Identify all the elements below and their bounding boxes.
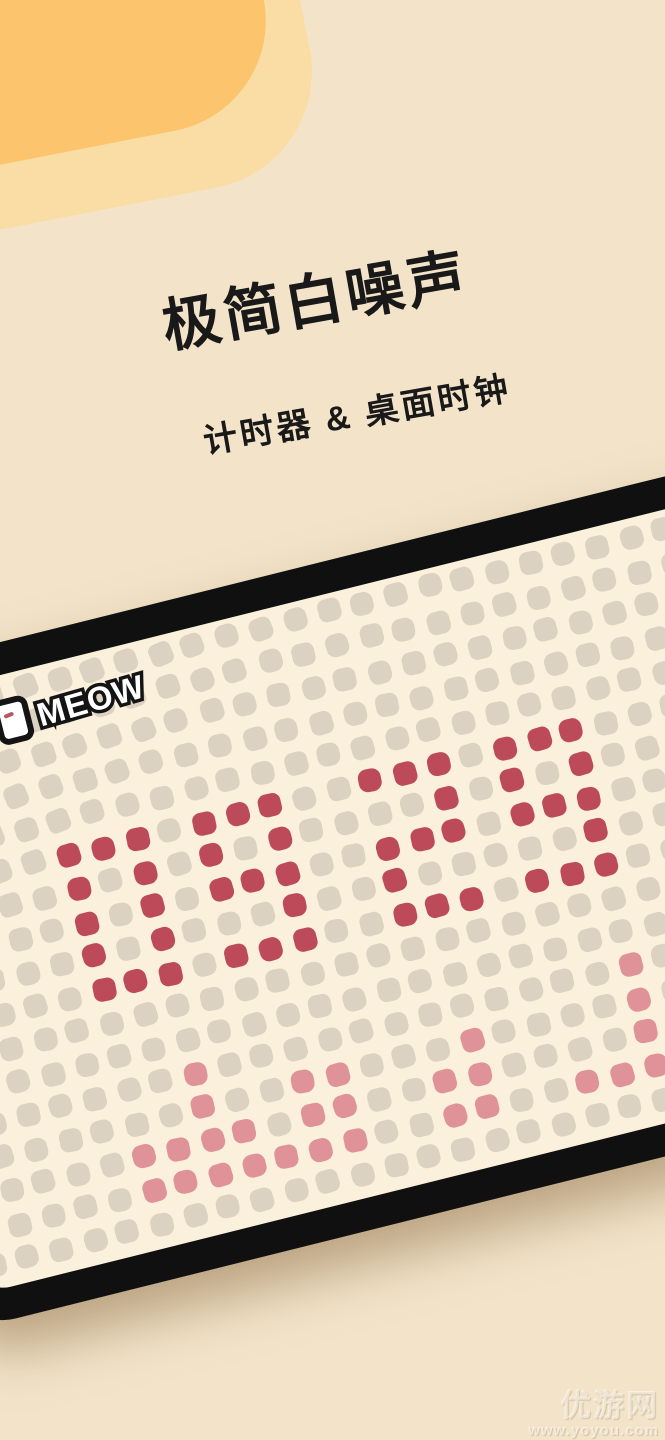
matrix-dot (498, 766, 526, 794)
matrix-dot (232, 835, 259, 862)
matrix-dot (187, 664, 217, 694)
matrix-dot (484, 700, 511, 727)
matrix-dot (424, 608, 452, 636)
matrix-dot (207, 875, 235, 903)
matrix-dot (60, 731, 90, 761)
matrix-dot (617, 524, 645, 552)
matrix-dot (381, 580, 409, 608)
matrix-dot (442, 675, 469, 702)
matrix-dot (616, 809, 645, 838)
matrix-dot (96, 866, 124, 894)
matrix-dot (491, 734, 519, 762)
matrix-dot (256, 934, 285, 963)
matrix-dot (615, 1093, 642, 1120)
matrix-dot (431, 1067, 459, 1095)
matrix-dot (307, 1136, 335, 1164)
matrix-dot (323, 630, 352, 659)
matrix-dot (407, 1111, 435, 1139)
matrix-dot (290, 784, 319, 813)
matrix-dot (358, 1051, 385, 1078)
matrix-dot (567, 609, 594, 636)
matrix-dot (459, 599, 486, 626)
matrix-dot (71, 1192, 99, 1220)
watermark: 优游网 www.yoyou.com (528, 1390, 659, 1438)
matrix-dot (375, 976, 402, 1003)
matrix-dot (148, 1211, 175, 1238)
matrix-dot (140, 1176, 168, 1204)
matrix-dot (115, 935, 143, 963)
matrix-dot (542, 935, 569, 962)
matrix-dot (241, 724, 269, 752)
matrix-dot (400, 649, 428, 677)
matrix-dot (406, 966, 434, 994)
matrix-dot (483, 558, 511, 586)
matrix-dot (340, 985, 368, 1013)
matrix-dot (508, 659, 536, 687)
matrix-dot (123, 1111, 150, 1138)
matrix-dot (339, 842, 366, 869)
matrix-dot (349, 734, 377, 762)
matrix-dot (273, 859, 302, 888)
matrix-dot (609, 634, 636, 661)
matrix-dot (153, 671, 182, 700)
matrix-dot (281, 1035, 309, 1063)
matrix-dot (624, 842, 651, 869)
matrix-dot (481, 841, 509, 869)
matrix-dot (649, 515, 665, 543)
matrix-dot (0, 1176, 25, 1203)
matrix-dot (466, 634, 494, 662)
matrix-dot (47, 1236, 75, 1264)
matrix-dot (566, 1035, 595, 1064)
matrix-dot (130, 1142, 158, 1170)
matrix-dot (0, 746, 23, 776)
cat-logo-icon (0, 694, 36, 747)
matrix-dot (626, 699, 654, 727)
matrix-dot (357, 910, 385, 938)
matrix-dot (222, 942, 250, 970)
matrix-dot (333, 951, 361, 979)
matrix-dot (425, 750, 452, 777)
matrix-dot (567, 749, 595, 777)
matrix-dot (372, 1117, 400, 1145)
matrix-dot (205, 1017, 233, 1045)
matrix-dot (349, 1161, 377, 1189)
matrix-dot (508, 1086, 535, 1113)
matrix-dot (274, 1001, 302, 1029)
matrix-dot (180, 916, 208, 944)
matrix-dot (7, 925, 35, 953)
dot-matrix-clock (0, 392, 665, 1294)
matrix-dot (414, 715, 443, 744)
matrix-dot (173, 1025, 201, 1053)
matrix-dot (592, 850, 620, 878)
promo-page: 极简白噪声 计时器 & 桌面时钟 MEOW 优游网 www.yoyou.com (0, 0, 665, 1440)
matrix-dot (365, 1086, 393, 1114)
matrix-dot (434, 926, 461, 953)
matrix-dot (257, 646, 285, 674)
matrix-dot (557, 716, 585, 744)
device-mockup: MEOW (0, 353, 665, 1332)
matrix-dot (48, 951, 75, 978)
matrix-dot (230, 1118, 257, 1145)
matrix-dot (15, 1101, 42, 1128)
matrix-dot (223, 1085, 252, 1114)
matrix-dot (140, 1035, 167, 1062)
matrix-dot (282, 1176, 310, 1204)
matrix-dot (558, 1001, 586, 1029)
matrix-dot (650, 659, 665, 688)
matrix-dot (533, 760, 560, 787)
matrix-dot (439, 816, 467, 844)
matrix-dot (182, 1201, 210, 1229)
matrix-dot (533, 900, 561, 928)
matrix-dot (584, 534, 611, 561)
matrix-dot (458, 885, 486, 913)
matrix-dot (657, 691, 665, 718)
matrix-dot (540, 791, 568, 819)
matrix-dot (206, 1160, 235, 1189)
matrix-dot (397, 791, 426, 820)
matrix-dot (0, 891, 24, 920)
matrix-dot (129, 714, 159, 744)
matrix-dot (550, 684, 577, 711)
matrix-dot (466, 1061, 493, 1088)
matrix-dot (515, 691, 543, 719)
matrix-dot (323, 1060, 351, 1088)
matrix-dot (584, 674, 612, 702)
matrix-dot (600, 1026, 628, 1054)
matrix-dot (199, 1126, 227, 1154)
matrix-dot (248, 1186, 276, 1214)
matrix-dot (523, 866, 551, 894)
matrix-dot (173, 885, 200, 912)
matrix-dot (230, 690, 258, 718)
matrix-dot (57, 1126, 84, 1153)
matrix-dot (155, 816, 183, 844)
matrix-dot (255, 791, 283, 819)
matrix-dot (449, 1136, 476, 1163)
matrix-dot (331, 666, 358, 693)
matrix-dot (14, 960, 42, 988)
matrix-dot (599, 884, 628, 913)
matrix-dot (650, 1086, 665, 1114)
matrix-dot (39, 1060, 67, 1088)
watermark-site-url: www.yoyou.com (528, 1423, 659, 1438)
matrix-dot (0, 1142, 16, 1171)
matrix-dot (40, 1202, 67, 1229)
matrix-dot (297, 816, 324, 843)
matrix-dot (113, 791, 141, 819)
matrix-dot (525, 724, 554, 753)
matrix-dot (124, 825, 151, 852)
matrix-dot (400, 1076, 427, 1103)
matrix-dot (246, 614, 276, 644)
matrix-dot (282, 749, 310, 777)
matrix-dot (43, 806, 73, 836)
matrix-dot (315, 596, 343, 624)
matrix-dot (417, 1001, 444, 1028)
matrix-dot (558, 574, 587, 603)
matrix-dot (389, 1042, 417, 1070)
matrix-dot (19, 847, 48, 876)
matrix-dot (165, 849, 194, 878)
matrix-dot (265, 681, 292, 708)
matrix-dot (607, 917, 634, 944)
matrix-dot (54, 841, 83, 870)
matrix-dot (548, 540, 576, 568)
matrix-dot (145, 639, 175, 669)
matrix-dot (94, 721, 123, 750)
matrix-dot (467, 775, 494, 802)
matrix-dot (383, 725, 411, 753)
matrix-dot (106, 1186, 133, 1213)
matrix-dot (62, 1016, 90, 1044)
matrix-dot (373, 691, 400, 718)
matrix-dot (299, 674, 327, 702)
matrix-dot (323, 917, 350, 944)
matrix-dot (157, 960, 184, 987)
matrix-dot (206, 731, 233, 758)
matrix-dot (516, 975, 544, 1003)
matrix-dot (390, 616, 417, 643)
matrix-dot (219, 656, 248, 685)
matrix-dot (314, 741, 341, 768)
matrix-dot (146, 1067, 174, 1095)
matrix-dot (542, 649, 571, 678)
matrix-dot (0, 967, 6, 994)
matrix-dot (71, 765, 100, 794)
matrix-dot (348, 590, 375, 617)
matrix-dot (582, 816, 610, 844)
matrix-dot (79, 941, 107, 969)
matrix-dot (315, 884, 343, 912)
matrix-dot (424, 1036, 452, 1064)
matrix-dot (642, 624, 665, 652)
matrix-dot (131, 860, 159, 888)
matrix-dot (0, 1035, 25, 1063)
matrix-dot (107, 901, 134, 928)
matrix-dot (491, 875, 520, 904)
matrix-dot (615, 666, 643, 694)
matrix-dot (649, 942, 665, 969)
matrix-dot (531, 615, 559, 643)
matrix-dot (517, 549, 544, 576)
matrix-dot (641, 910, 665, 938)
matrix-dot (37, 916, 66, 945)
matrix-dot (408, 825, 435, 852)
matrix-dot (489, 590, 517, 618)
matrix-dot (341, 1126, 368, 1153)
matrix-dot (617, 951, 645, 979)
matrix-dot (382, 1010, 410, 1038)
matrix-dot (148, 925, 177, 954)
matrix-dot (464, 916, 492, 944)
matrix-dot (474, 810, 502, 838)
matrix-dot (447, 565, 476, 594)
matrix-dot (550, 825, 578, 853)
matrix-dot (289, 1067, 316, 1094)
matrix-dot (138, 891, 166, 919)
matrix-dot (190, 810, 217, 837)
matrix-dot (215, 910, 242, 937)
matrix-dot (190, 950, 218, 978)
matrix-dot (641, 766, 665, 793)
matrix-dot (182, 1061, 209, 1088)
matrix-dot (29, 740, 58, 769)
matrix-dot (548, 967, 576, 995)
matrix-dot (364, 941, 393, 970)
matrix-dot (88, 1117, 116, 1145)
matrix-dot (98, 1010, 126, 1038)
matrix-dot (0, 1001, 17, 1029)
matrix-dot (247, 1042, 274, 1069)
watermark-site-name: 优游网 (528, 1390, 659, 1421)
matrix-dot (77, 797, 106, 826)
matrix-dot (573, 640, 601, 668)
matrix-dot (0, 822, 6, 852)
matrix-dot (599, 741, 627, 769)
matrix-dot (1, 781, 31, 811)
matrix-dot (115, 1075, 144, 1104)
matrix-dot (212, 621, 241, 650)
matrix-dot (632, 1018, 659, 1045)
matrix-dot (506, 942, 534, 970)
matrix-dot (73, 910, 101, 938)
matrix-dot (160, 706, 189, 735)
matrix-dot (265, 1110, 293, 1138)
matrix-dot (98, 1151, 127, 1180)
matrix-dot (659, 976, 665, 1004)
matrix-dot (584, 1101, 612, 1129)
matrix-dot (473, 1092, 501, 1120)
matrix-dot (422, 891, 450, 919)
matrix-dot (289, 640, 317, 668)
matrix-dot (199, 985, 226, 1012)
matrix-dot (213, 766, 241, 794)
matrix-dot (165, 1136, 192, 1163)
matrix-dot (121, 966, 149, 994)
matrix-dot (590, 992, 617, 1019)
matrix-dot (0, 1110, 8, 1138)
matrix-dot (565, 892, 593, 920)
matrix-dot (35, 772, 64, 801)
matrix-dot (573, 1068, 600, 1095)
matrix-dot (316, 1026, 344, 1054)
matrix-dot (332, 809, 360, 837)
matrix-dot (658, 834, 665, 862)
matrix-dot (239, 1010, 268, 1039)
matrix-dot (600, 599, 628, 627)
matrix-dot (29, 1167, 57, 1195)
matrix-dot (172, 1168, 200, 1196)
matrix-dot (32, 1026, 59, 1053)
matrix-dot (525, 1011, 552, 1038)
matrix-dot (74, 1051, 101, 1078)
matrix-dot (232, 975, 260, 1003)
matrix-dot (449, 709, 477, 737)
matrix-dot (508, 799, 537, 828)
matrix-dot (299, 1101, 327, 1129)
matrix-dot (432, 784, 460, 812)
matrix-dot (264, 967, 291, 994)
matrix-dot (549, 1110, 578, 1139)
matrix-dot (81, 1085, 109, 1113)
matrix-dot (157, 1101, 185, 1129)
matrix-dot (131, 1000, 160, 1029)
matrix-dot (609, 775, 637, 803)
matrix-dot (214, 1193, 241, 1220)
matrix-dot (625, 985, 653, 1013)
app-title: 极简白噪声 (49, 221, 583, 382)
matrix-dot (182, 774, 211, 803)
matrix-dot (489, 1017, 517, 1045)
matrix-dot (380, 866, 409, 895)
matrix-dot (163, 992, 191, 1020)
matrix-dot (65, 875, 92, 902)
matrix-dot (198, 696, 227, 725)
matrix-dot (515, 1118, 543, 1146)
matrix-dot (298, 960, 326, 988)
matrix-dot (4, 1066, 33, 1095)
matrix-dot (113, 1218, 141, 1246)
matrix-dot (500, 1051, 528, 1079)
matrix-dot (281, 605, 310, 634)
matrix-dot (374, 834, 402, 862)
matrix-dot (642, 1051, 665, 1079)
matrix-dot (365, 658, 393, 686)
matrix-dot (291, 925, 319, 953)
matrix-dot (659, 549, 665, 577)
matrix-dot (239, 866, 267, 894)
matrix-dot (64, 1161, 92, 1189)
matrix-dot (0, 1076, 1, 1104)
hero-text-block: 极简白噪声 计时器 & 桌面时钟 (49, 221, 601, 485)
matrix-dot (391, 759, 419, 787)
matrix-dot (5, 1211, 33, 1239)
matrix-dot (501, 625, 528, 652)
matrix-dot (583, 960, 612, 989)
matrix-dot (104, 1042, 132, 1070)
matrix-dot (450, 851, 477, 878)
matrix-dot (475, 950, 504, 979)
matrix-dot (197, 841, 225, 869)
matrix-dot (313, 1167, 342, 1196)
matrix-dot (46, 1092, 74, 1120)
matrix-dot (148, 784, 176, 812)
matrix-dot (575, 785, 602, 812)
matrix-dot (633, 734, 662, 763)
matrix-dot (188, 1092, 216, 1120)
device-screen: MEOW (0, 392, 665, 1294)
matrix-dot (136, 747, 165, 776)
matrix-dot (266, 825, 294, 853)
matrix-dot (356, 766, 383, 793)
matrix-dot (447, 992, 475, 1020)
matrix-dot (456, 741, 484, 769)
matrix-dot (324, 775, 352, 803)
matrix-dot (414, 1142, 442, 1170)
matrix-dot (56, 985, 84, 1013)
matrix-dot (31, 884, 59, 912)
matrix-dot (81, 1226, 110, 1255)
matrix-dot (575, 925, 603, 953)
matrix-dot (473, 665, 501, 693)
matrix-dot (215, 1051, 243, 1079)
matrix-dot (308, 850, 336, 878)
matrix-dot (224, 799, 252, 827)
matrix-dot (366, 800, 394, 828)
